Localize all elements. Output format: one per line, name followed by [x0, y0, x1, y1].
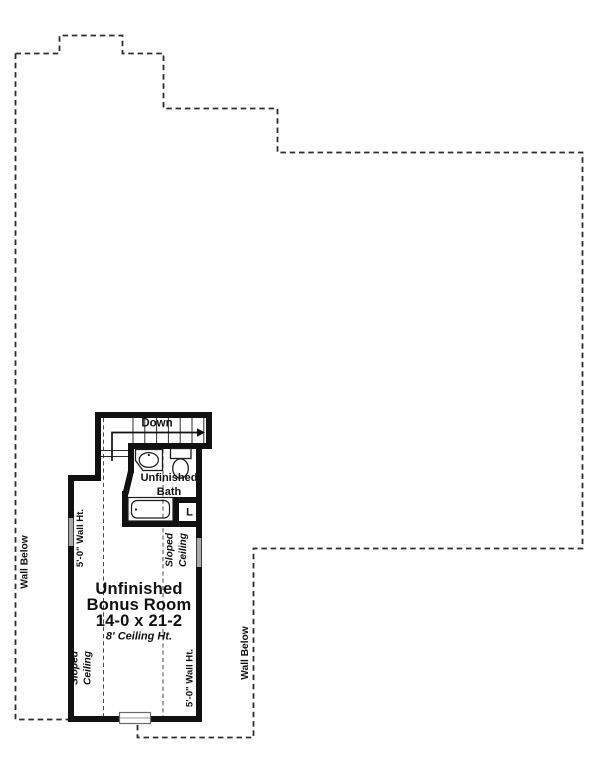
closet-label: L — [186, 507, 193, 519]
sink-fixture — [136, 450, 163, 471]
sloped-ceiling-upper-line2: Ceiling — [178, 532, 189, 567]
left-wall-window — [69, 518, 74, 546]
bottom-wall-window — [120, 713, 151, 724]
wall-below-label-right: Wall Below — [240, 626, 251, 679]
sloped-ceiling-lower-line2: Ceiling — [83, 650, 94, 685]
right-wall-window — [197, 538, 202, 567]
room-ceiling-note: 8' Ceiling Ht. — [106, 631, 172, 643]
room-dimensions: 14-0 x 21-2 — [96, 612, 183, 630]
tub-closet-divider-wall — [173, 497, 179, 521]
wall-height-label-right: 5'-0" Wall Ht. — [185, 649, 196, 707]
wall-below-outline-left — [16, 54, 69, 720]
bath-bottom-wall — [122, 521, 202, 527]
floor-plan-drawing: Down Unfinished Bath L Unfinished Bonus … — [0, 0, 600, 777]
wall-height-label-left: 5'-0" Wall Ht. — [75, 509, 86, 567]
wall-below-outline-main — [16, 36, 583, 738]
sloped-ceiling-upper-line1: Sloped — [165, 532, 176, 567]
sloped-ceiling-lower-line1: Sloped — [70, 650, 81, 685]
bath-left-wall — [128, 443, 134, 473]
bath-label-line2: Bath — [157, 486, 182, 498]
bathtub-fixture — [128, 498, 173, 522]
stair-left-wall — [95, 412, 101, 481]
floor-plan-page: Down Unfinished Bath L Unfinished Bonus … — [0, 0, 600, 777]
bath-label-line1: Unfinished — [141, 472, 198, 484]
stairs-down-label: Down — [141, 418, 172, 430]
room-right-wall — [196, 443, 202, 722]
bath-angled-wall — [126, 471, 132, 494]
wall-below-label-left: Wall Below — [20, 535, 31, 588]
